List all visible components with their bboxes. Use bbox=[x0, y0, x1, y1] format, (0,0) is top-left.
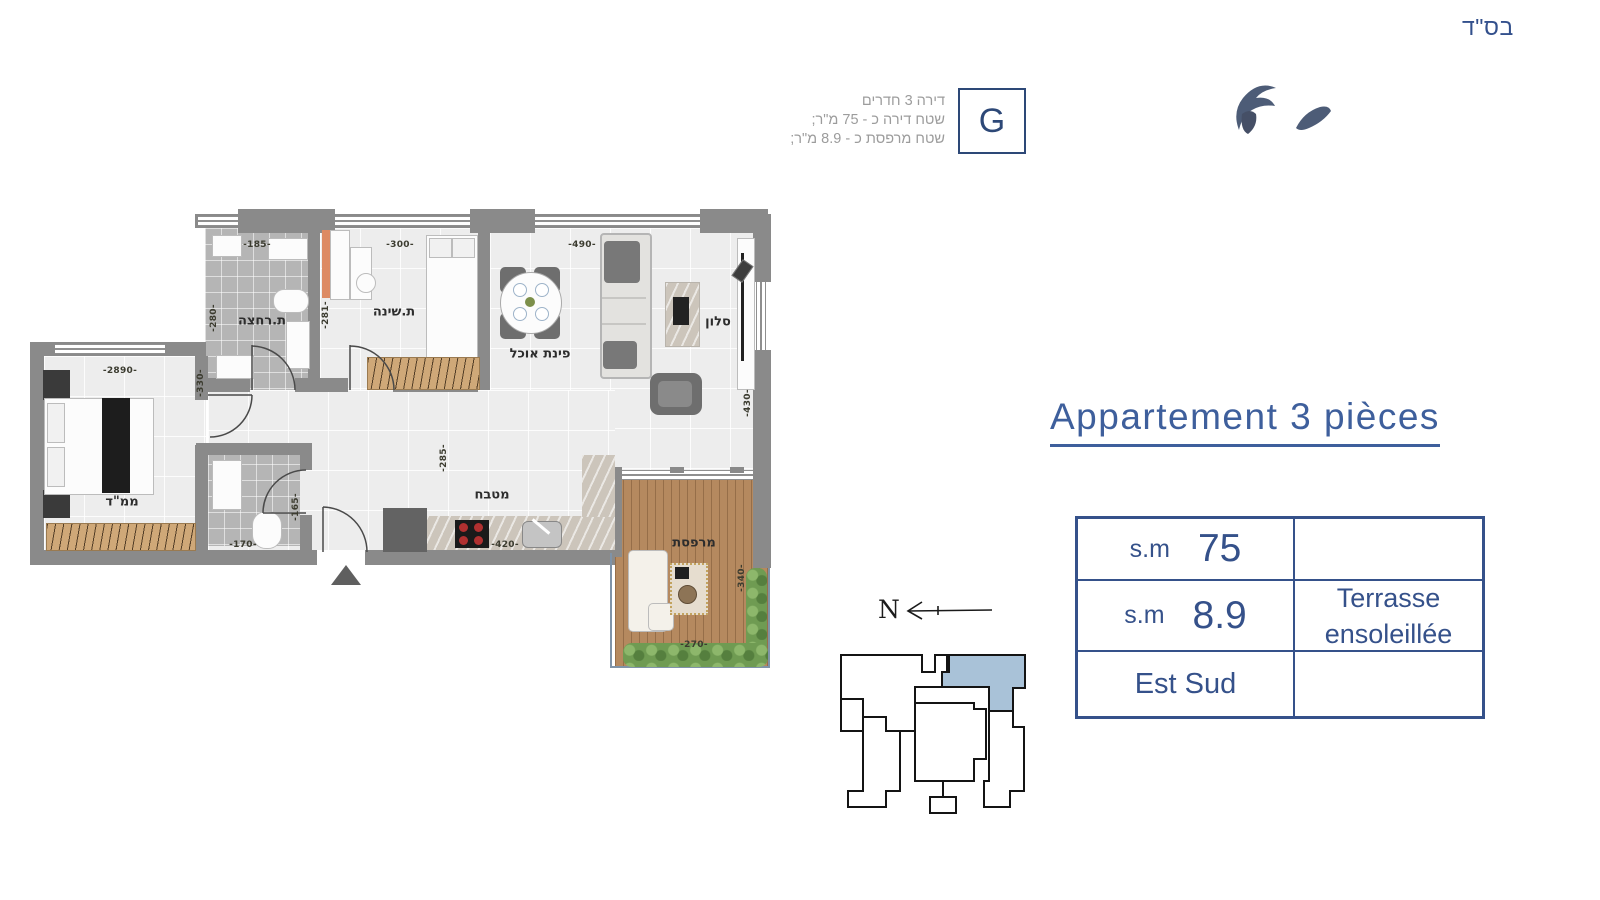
entrance-door bbox=[323, 507, 367, 552]
room-label-bedroom: ת.שינה bbox=[373, 305, 415, 320]
key-plan-notch bbox=[841, 699, 863, 731]
spec-cell-orientation: Est Sud bbox=[1078, 650, 1293, 716]
dim-label: -280- bbox=[209, 304, 219, 332]
unit-info-line: שטח מרפסת כ - 8.9 מ"ר; bbox=[700, 130, 945, 149]
unit-letter-box: G bbox=[958, 88, 1026, 154]
dim-label: -170- bbox=[229, 540, 257, 550]
orientation-value: Est Sud bbox=[1135, 668, 1237, 701]
doors-overlay bbox=[30, 205, 775, 685]
north-arrow-icon bbox=[900, 598, 995, 626]
spec-cell-area: s.m 75 bbox=[1078, 519, 1293, 579]
spec-cell-empty bbox=[1293, 519, 1482, 579]
bedroom-door bbox=[350, 345, 394, 390]
unit-info-line: דירה 3 חדרים bbox=[700, 92, 945, 111]
apartment-title: Appartement 3 pièces bbox=[1050, 396, 1440, 447]
dim-label: -270- bbox=[680, 640, 708, 650]
room-label-terrace: מרפסת bbox=[672, 536, 716, 551]
bsd-blessing: בס"ד bbox=[1462, 14, 1514, 41]
key-plan-unit bbox=[915, 703, 986, 781]
terrace-note-line: Terrasse bbox=[1325, 580, 1453, 616]
dim-label: -2890- bbox=[103, 366, 137, 376]
floor-plan: ת.רחצה ת.שינה פינת אוכל סלון ממ"ד מטבח מ… bbox=[30, 205, 775, 685]
building-key-plan bbox=[826, 641, 1031, 826]
dim-label: -185- bbox=[243, 240, 271, 250]
unit-label: s.m bbox=[1130, 535, 1170, 564]
unit-info-line: שטח דירה כ - 75 מ"ר; bbox=[700, 111, 945, 130]
area-value: 75 bbox=[1198, 527, 1241, 571]
dim-label: -281- bbox=[321, 301, 331, 329]
room-label-dining: פינת אוכל bbox=[510, 347, 571, 362]
dim-label: -285- bbox=[439, 444, 449, 472]
spec-cell-terrace-area: s.m 8.9 bbox=[1078, 579, 1293, 650]
room-label-living: סלון bbox=[705, 315, 731, 330]
spec-table: s.m 75 s.m 8.9 Terrasse ensoleillée Est … bbox=[1075, 516, 1485, 719]
spec-cell-empty bbox=[1293, 650, 1482, 716]
key-plan-unit bbox=[984, 711, 1024, 807]
dim-label: -300- bbox=[386, 240, 414, 250]
dim-label: -490- bbox=[568, 240, 596, 250]
dim-label: -340- bbox=[737, 564, 747, 592]
unit-letter: G bbox=[979, 102, 1005, 141]
room-label-bathroom: ת.רחצה bbox=[238, 314, 286, 329]
dim-label: -165- bbox=[291, 493, 301, 521]
bathroom-door bbox=[252, 345, 295, 390]
mamad-door bbox=[208, 395, 252, 437]
key-plan-foot bbox=[930, 797, 956, 813]
terrace-area-value: 8.9 bbox=[1193, 594, 1247, 638]
birds-logo-icon bbox=[1218, 78, 1333, 140]
dim-label: -420- bbox=[491, 540, 519, 550]
dim-label: -330- bbox=[196, 369, 206, 397]
entrance-arrow bbox=[331, 565, 361, 585]
terrace-note-line: ensoleillée bbox=[1325, 616, 1453, 652]
unit-label: s.m bbox=[1124, 601, 1164, 630]
room-label-mamad: ממ"ד bbox=[105, 495, 138, 510]
dim-label: -430- bbox=[743, 389, 753, 417]
north-label: N bbox=[878, 595, 900, 624]
room-label-kitchen: מטבח bbox=[474, 488, 509, 503]
spec-cell-terrace-note: Terrasse ensoleillée bbox=[1293, 579, 1482, 650]
unit-info: דירה 3 חדרים שטח דירה כ - 75 מ"ר; שטח מר… bbox=[700, 92, 945, 149]
